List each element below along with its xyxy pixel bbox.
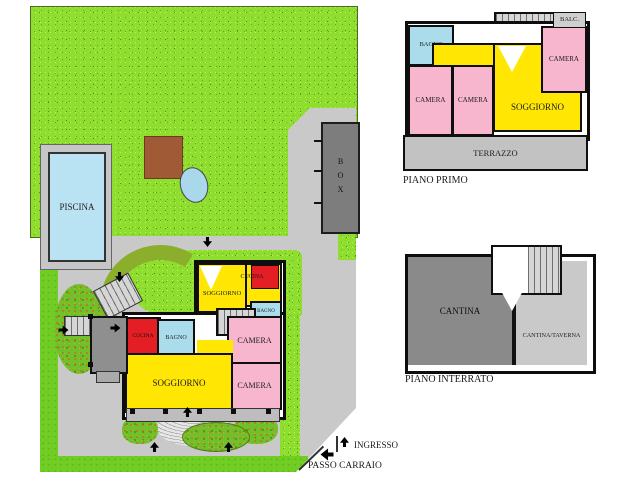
pi-cantina-label: CANTINA (415, 306, 505, 316)
room-soggiorno-main: SOGGIORNO (125, 353, 233, 413)
front-terrace (126, 408, 280, 422)
room-camera-2: CAMERA (227, 362, 282, 410)
room-cucina-lower: CUCINA (125, 317, 161, 357)
room-camera-1-label: CAMERA (237, 337, 271, 345)
terrace-column-3 (197, 409, 202, 414)
pp-balcone: BALC. (553, 12, 586, 28)
terrace-column-5 (266, 409, 271, 414)
pool-label: PISCINA (59, 202, 94, 212)
pp-room-camera-center: CAMERA (452, 65, 494, 136)
side-terrace-post-2 (88, 362, 93, 367)
pp-terrazzo-label: TERRAZZO (473, 149, 517, 158)
garage-box-label: BOX (336, 157, 345, 199)
room-cucina-lower-label: CUCINA (132, 334, 153, 340)
room-bagno-upper-label: BAGNO (257, 309, 275, 314)
grass-patch-right-of-box (338, 232, 356, 260)
pp-camera-left-label: CAMERA (416, 97, 446, 104)
floor-plan-canvas: BOX PISCINA SOGGIORNO CUCINA BAGNO CAMER… (0, 0, 640, 480)
room-soggiorno-upper-label: SOGGIORNO (203, 291, 241, 298)
pi-stairs (491, 245, 562, 295)
room-soggiorno-main-label: SOGGIORNO (152, 379, 205, 388)
garden-shed (144, 136, 183, 179)
pp-room-camera-left: CAMERA (408, 65, 453, 136)
piano-primo-title: PIANO PRIMO (403, 175, 468, 186)
pp-soggiorno-label: SOGGIORNO (511, 103, 564, 112)
box-tick-1 (314, 140, 322, 142)
hedge-left (40, 236, 58, 472)
room-camera-1: CAMERA (227, 316, 282, 366)
room-bagno-lower: BAGNO (157, 319, 195, 357)
pi-taverna-label: CANTINA/TAVERNA (516, 332, 587, 339)
side-terrace-post-1 (88, 314, 93, 319)
box-tick-3 (314, 202, 322, 204)
garage-box: BOX (321, 122, 360, 234)
pp-camera-right-label: CAMERA (549, 56, 579, 63)
room-bagno-lower-label: BAGNO (165, 335, 186, 341)
pi-stairs-treads (528, 247, 560, 293)
room-camera-2-label: CAMERA (237, 382, 271, 390)
terrace-column-4 (231, 409, 236, 414)
boundary-line-2 (336, 436, 338, 452)
flowerbed-oval (182, 422, 250, 452)
piano-interrato-title: PIANO INTERRATO (405, 374, 493, 385)
pool: PISCINA (48, 152, 106, 262)
terrace-column-1 (130, 409, 135, 414)
entrance-label: INGRESSO (354, 440, 398, 450)
pp-terrazzo: TERRAZZO (403, 135, 588, 171)
side-terrace-step (96, 371, 120, 383)
pp-camera-center-label: CAMERA (458, 97, 488, 104)
pp-room-camera-right: CAMERA (541, 26, 587, 93)
driveway-label: PASSO CARRAIO (308, 461, 382, 471)
terrace-column-2 (163, 409, 168, 414)
pp-balcone-label: BALC. (560, 17, 579, 24)
hedge-bottom (40, 456, 308, 472)
room-cucina-upper-label: CUCINA (230, 274, 274, 280)
side-terrace (90, 316, 128, 374)
box-tick-2 (314, 170, 322, 172)
